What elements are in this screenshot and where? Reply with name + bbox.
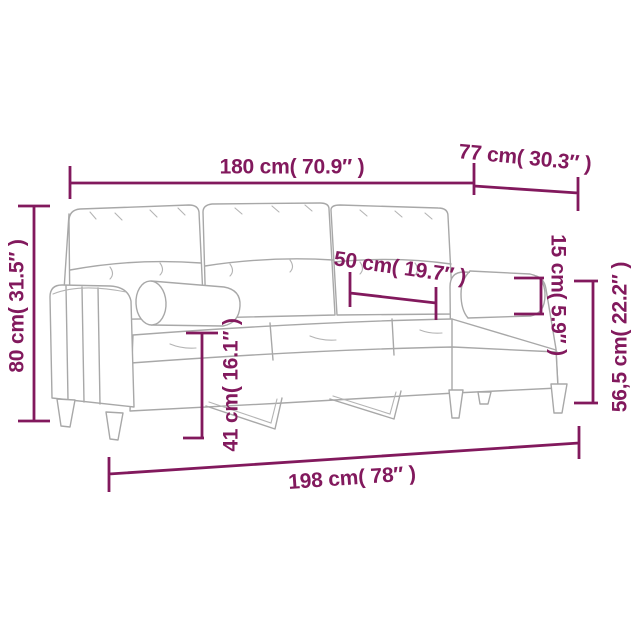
- dimension-diagram: 180 cm( 70.9″ ) 77 cm( 30.3″ ) 80 cm( 31…: [0, 0, 640, 640]
- dimension-label-overall-height: 80 cm( 31.5″ ): [7, 239, 28, 372]
- armrest-left: [50, 285, 134, 407]
- sofa-sketch: [0, 0, 640, 640]
- sofa-drawing: [50, 203, 567, 440]
- dimension-label-bolster-diameter: 15 cm( 5.9″ ): [548, 234, 569, 356]
- dimension-label-overall-width: 180 cm( 70.9″ ): [220, 157, 365, 178]
- dimension-label-arm-height: 56,5 cm( 22.2″ ): [610, 262, 631, 412]
- dimension-line-arm-height: [574, 281, 598, 403]
- dimension-label-seat-height: 41 cm( 16.1″ ): [221, 318, 242, 451]
- dimension-line-overall-depth: [474, 177, 578, 211]
